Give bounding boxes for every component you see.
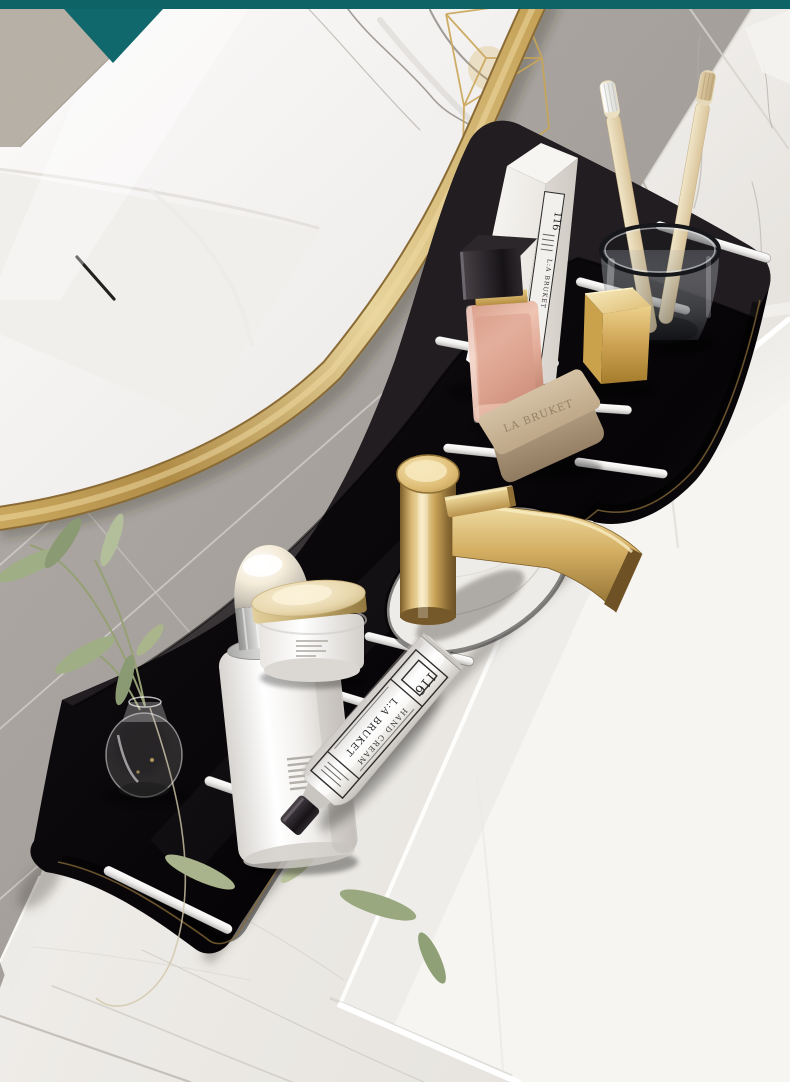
vase-base-dark (119, 782, 169, 798)
jar-base (264, 658, 360, 682)
perfume-cap (460, 248, 523, 300)
teal-strip (0, 0, 790, 9)
cream-jar (250, 575, 367, 689)
cup-glare-right (706, 256, 711, 318)
scene-canvas: 116 L:A BRUKET (0, 0, 790, 1082)
faucet-top-glow (405, 460, 447, 482)
bathroom-shelf-product-photo: 116 L:A BRUKET (0, 0, 790, 1082)
cube-front-face (601, 306, 651, 384)
